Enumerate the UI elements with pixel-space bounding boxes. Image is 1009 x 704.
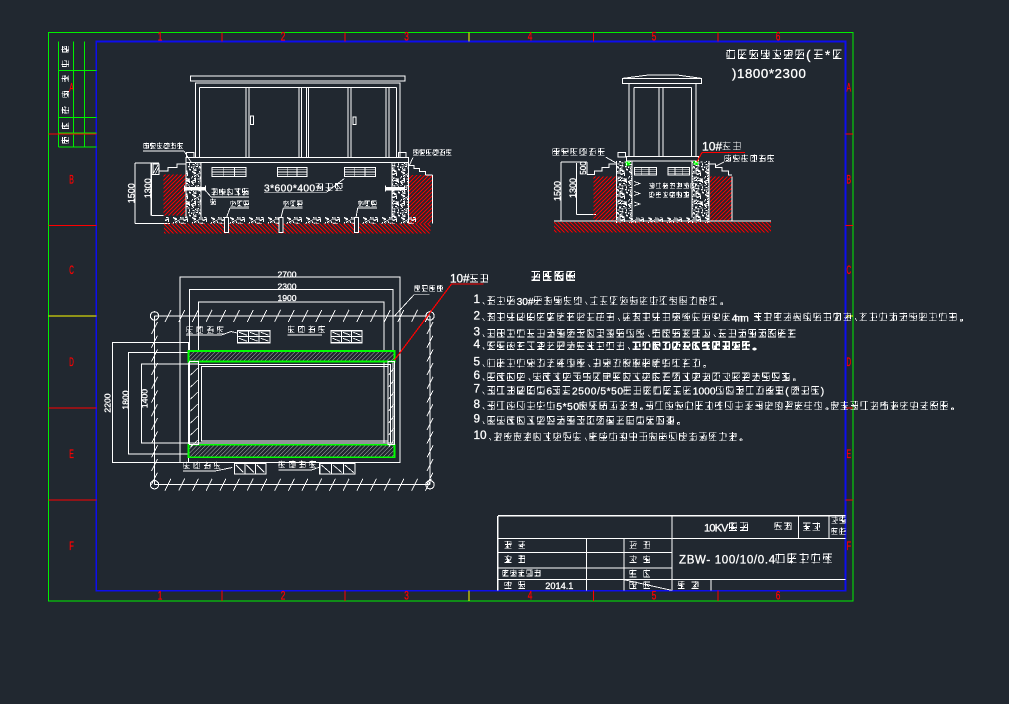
svg-text:F: F xyxy=(847,541,852,553)
svg-text:2300: 2300 xyxy=(277,281,296,291)
svg-text:2200: 2200 xyxy=(102,393,112,412)
svg-text:2: 2 xyxy=(474,308,481,322)
svg-text:ZBW- 100/10/0.4: ZBW- 100/10/0.4 xyxy=(679,555,776,567)
svg-text:B: B xyxy=(69,175,74,187)
svg-text:6: 6 xyxy=(474,368,481,382)
svg-text:B: B xyxy=(847,175,852,187)
svg-text:2500/5*50: 2500/5*50 xyxy=(572,387,623,398)
svg-text:7: 7 xyxy=(474,382,481,396)
svg-text:8: 8 xyxy=(474,397,481,411)
svg-text:4: 4 xyxy=(474,337,481,351)
svg-text:1500: 1500 xyxy=(552,181,562,201)
svg-text:2: 2 xyxy=(281,32,286,44)
svg-text:10: 10 xyxy=(474,428,488,442)
svg-text:2014.1: 2014.1 xyxy=(545,581,573,591)
svg-text:10KV: 10KV xyxy=(704,522,729,534)
svg-text:6: 6 xyxy=(776,591,781,603)
svg-text:(: ( xyxy=(785,387,789,398)
svg-text:2: 2 xyxy=(281,591,286,603)
svg-text:): ) xyxy=(821,387,824,398)
svg-text:2700: 2700 xyxy=(277,270,296,280)
svg-text:10#: 10# xyxy=(450,272,470,286)
svg-text:)1800*2300: )1800*2300 xyxy=(732,66,806,81)
svg-text:5: 5 xyxy=(652,591,657,603)
svg-text:1000: 1000 xyxy=(693,387,716,398)
svg-text:4: 4 xyxy=(528,32,533,44)
svg-text:1300: 1300 xyxy=(568,178,578,198)
svg-text:9: 9 xyxy=(474,412,481,426)
svg-text:10#: 10# xyxy=(702,139,722,153)
svg-text:C: C xyxy=(69,265,74,277)
svg-text:1: 1 xyxy=(158,591,163,603)
svg-text:3*600*400: 3*600*400 xyxy=(264,183,315,194)
svg-text:D: D xyxy=(69,357,74,369)
svg-text:1400: 1400 xyxy=(139,389,149,408)
svg-text:(: ( xyxy=(806,47,811,62)
svg-text:4: 4 xyxy=(528,591,533,603)
svg-text:30#: 30# xyxy=(517,297,534,308)
svg-text:1500: 1500 xyxy=(126,183,136,203)
svg-text:C: C xyxy=(847,265,852,277)
svg-text:5: 5 xyxy=(474,355,481,369)
svg-text:5*50: 5*50 xyxy=(556,402,579,413)
svg-text:5: 5 xyxy=(652,32,657,44)
svg-text:3: 3 xyxy=(404,32,409,44)
svg-text:D: D xyxy=(847,357,852,369)
svg-text:1300: 1300 xyxy=(143,178,153,198)
svg-text:1900: 1900 xyxy=(277,293,296,303)
svg-text:1: 1 xyxy=(474,292,481,306)
svg-text:E: E xyxy=(847,449,852,461)
svg-text:*: * xyxy=(825,47,830,62)
svg-text:F: F xyxy=(69,541,74,553)
svg-text:500: 500 xyxy=(579,161,588,175)
svg-text:A: A xyxy=(847,83,852,95)
svg-text:E: E xyxy=(69,449,74,461)
svg-text:6: 6 xyxy=(546,387,552,398)
svg-text:1800: 1800 xyxy=(120,390,130,409)
svg-text:1: 1 xyxy=(158,32,163,44)
svg-text:3: 3 xyxy=(404,591,409,603)
svg-text:6: 6 xyxy=(776,32,781,44)
svg-text:4mm: 4mm xyxy=(732,313,749,324)
